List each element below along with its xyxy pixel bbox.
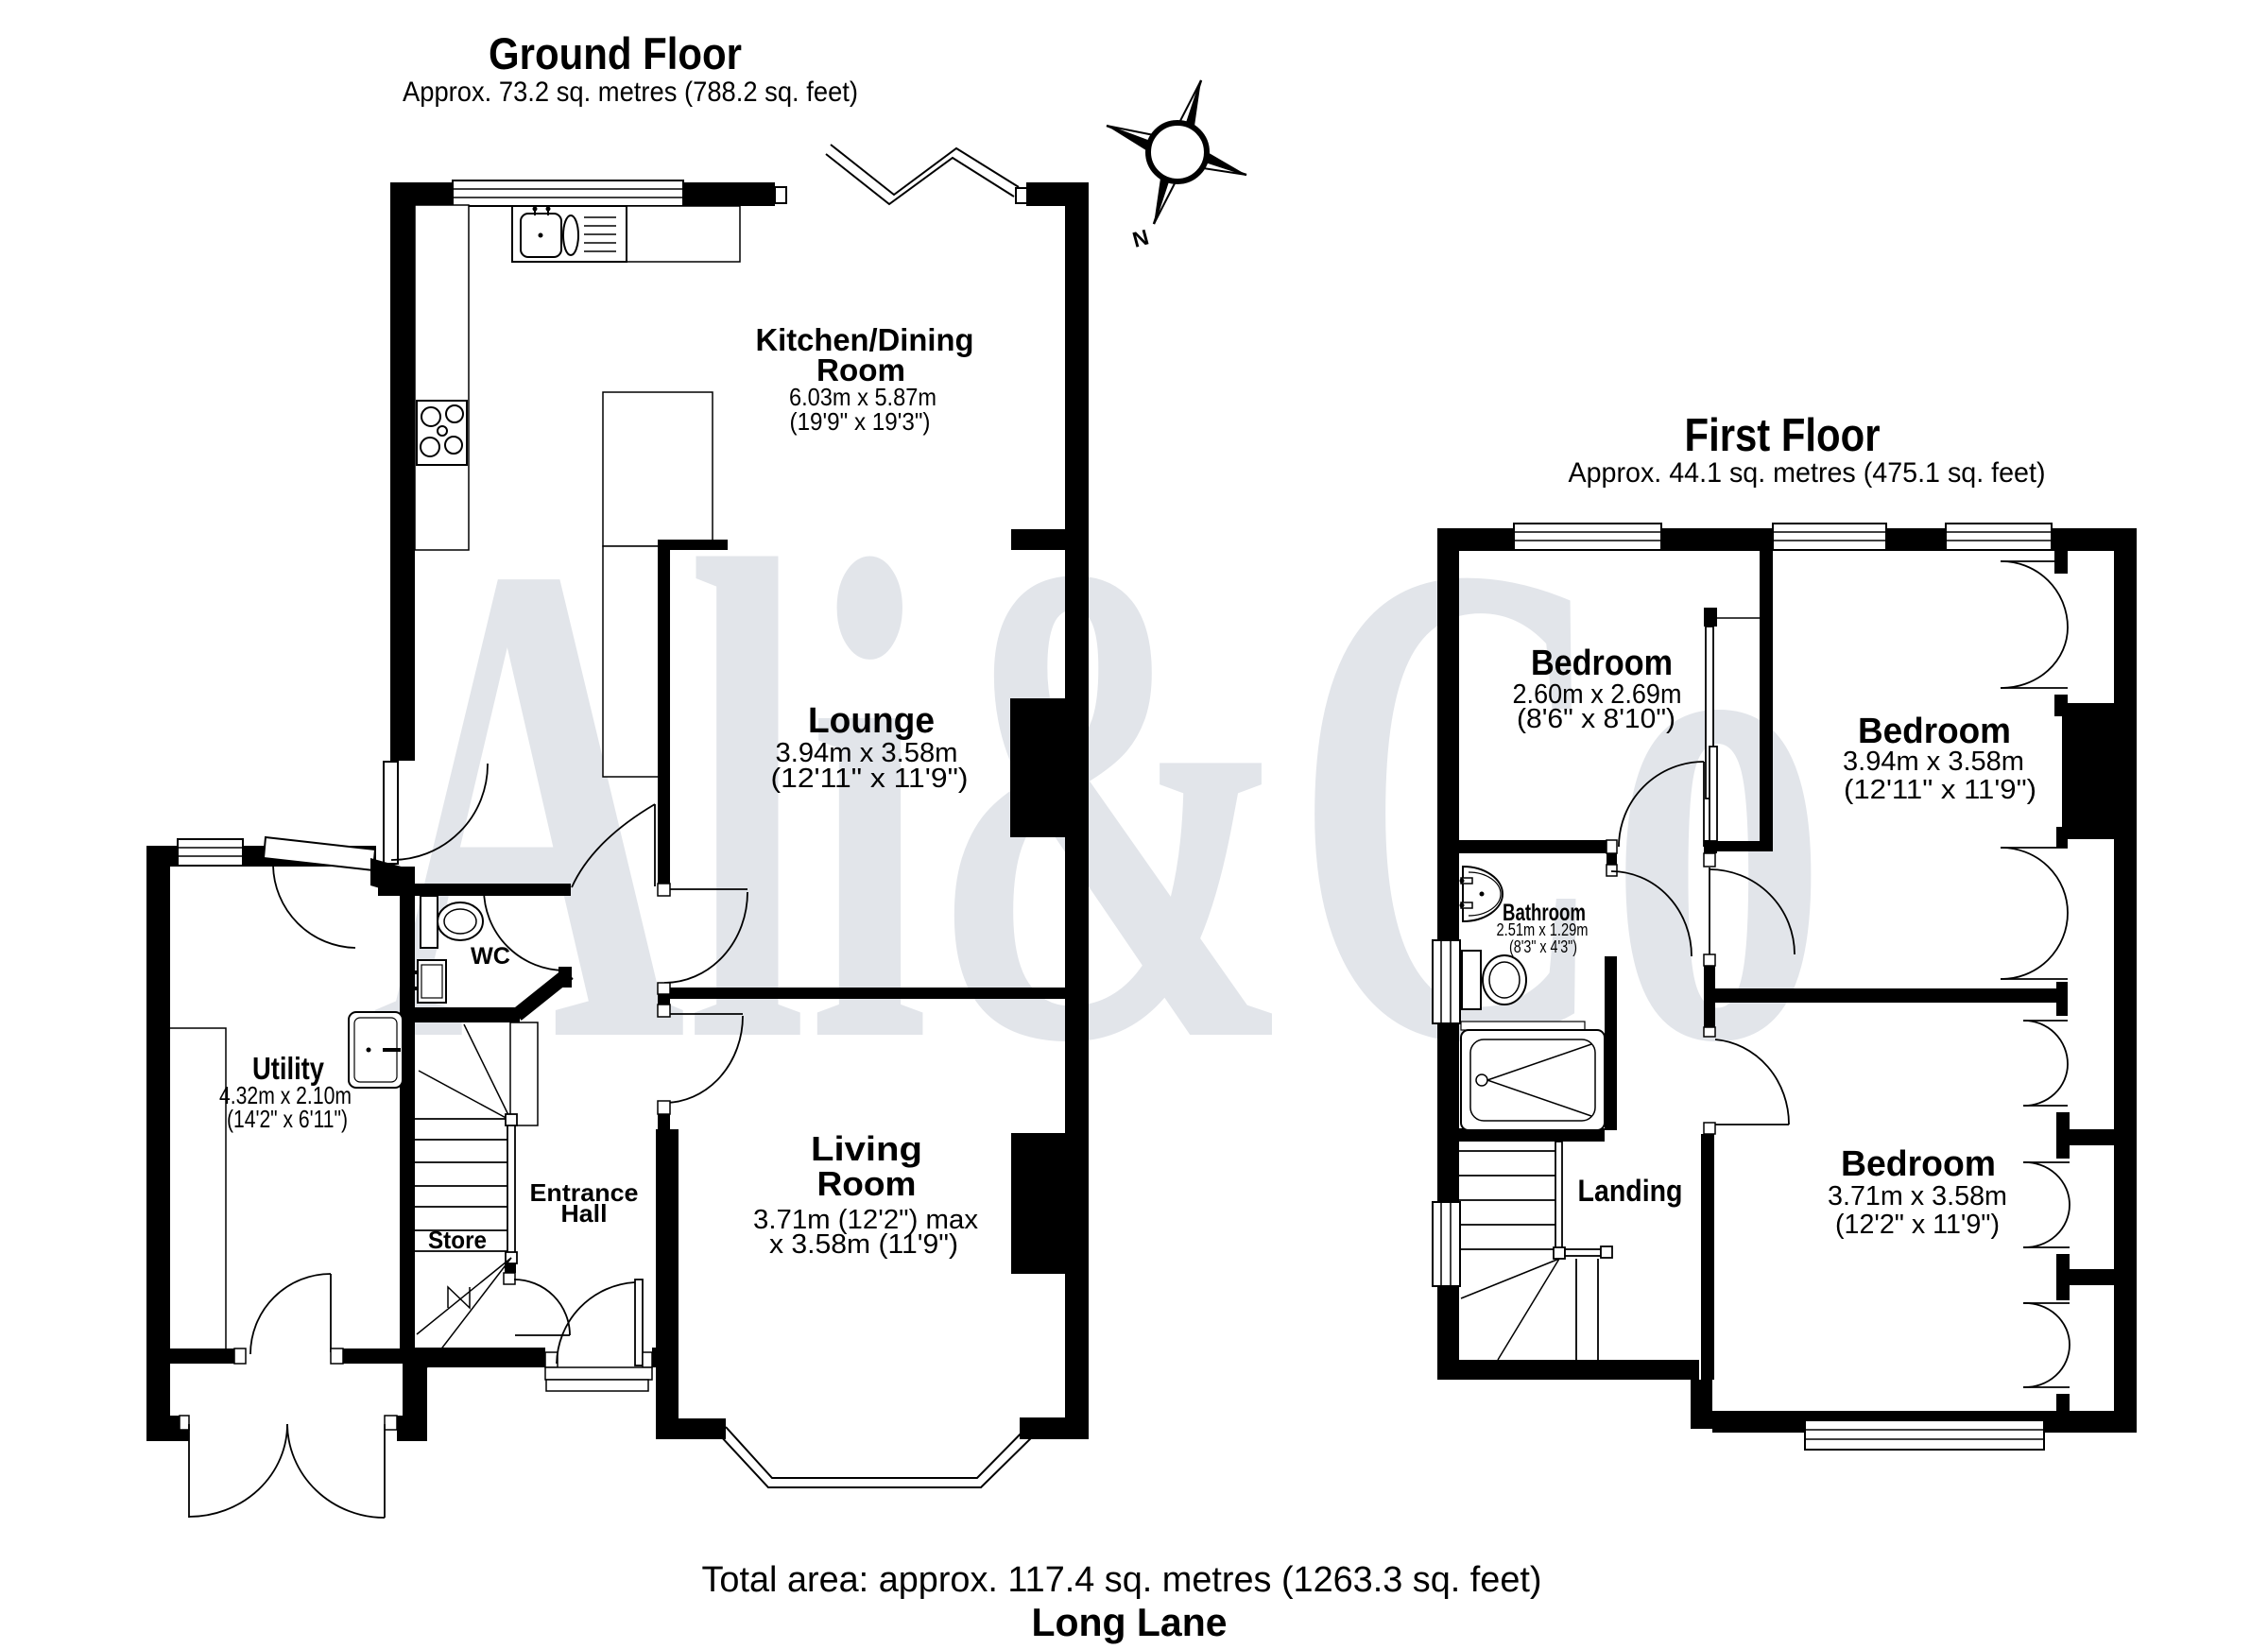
svg-text:(12'11" x 11'9"): (12'11" x 11'9") xyxy=(1844,775,2036,805)
svg-text:First Floor: First Floor xyxy=(1685,410,1881,461)
svg-text:Bedroom: Bedroom xyxy=(1841,1144,1996,1184)
svg-text:3.71m x 3.58m: 3.71m x 3.58m xyxy=(1828,1181,2007,1211)
svg-text:2.51m x 1.29m: 2.51m x 1.29m xyxy=(1497,920,1589,939)
svg-text:(8'6" x 8'10"): (8'6" x 8'10") xyxy=(1517,704,1675,734)
svg-text:x 3.58m (11'9"): x 3.58m (11'9") xyxy=(769,1229,958,1260)
svg-text:Hall: Hall xyxy=(561,1199,608,1228)
svg-text:Long Lane: Long Lane xyxy=(1032,1600,1228,1644)
svg-text:WC: WC xyxy=(471,943,510,970)
svg-text:Total area: approx. 117.4 sq.: Total area: approx. 117.4 sq. metres (12… xyxy=(702,1560,1542,1600)
svg-text:3.94m x 3.58m: 3.94m x 3.58m xyxy=(1843,747,2024,777)
svg-text:(12'2" x 11'9"): (12'2" x 11'9") xyxy=(1835,1210,2000,1240)
svg-text:Living: Living xyxy=(811,1129,922,1168)
svg-text:Lounge: Lounge xyxy=(808,701,935,741)
svg-text:N: N xyxy=(1130,224,1152,251)
svg-text:(14'2" x 6'11"): (14'2" x 6'11") xyxy=(227,1105,348,1133)
svg-text:Room: Room xyxy=(817,1164,917,1203)
svg-text:(12'11" x 11'9"): (12'11" x 11'9") xyxy=(771,764,969,794)
svg-text:(8'3" x 4'3"): (8'3" x 4'3") xyxy=(1509,937,1577,956)
svg-text:Bedroom: Bedroom xyxy=(1858,712,2011,751)
svg-text:Bedroom: Bedroom xyxy=(1531,644,1673,683)
svg-text:Ground Floor: Ground Floor xyxy=(489,28,742,78)
svg-text:(19'9" x 19'3"): (19'9" x 19'3") xyxy=(790,407,931,436)
svg-text:Approx. 73.2 sq. metres (788.2: Approx. 73.2 sq. metres (788.2 sq. feet) xyxy=(403,77,858,108)
svg-text:Landing: Landing xyxy=(1578,1174,1683,1208)
svg-text:Approx. 44.1 sq. metres (475.1: Approx. 44.1 sq. metres (475.1 sq. feet) xyxy=(1569,457,2046,489)
svg-text:Store: Store xyxy=(428,1226,487,1254)
